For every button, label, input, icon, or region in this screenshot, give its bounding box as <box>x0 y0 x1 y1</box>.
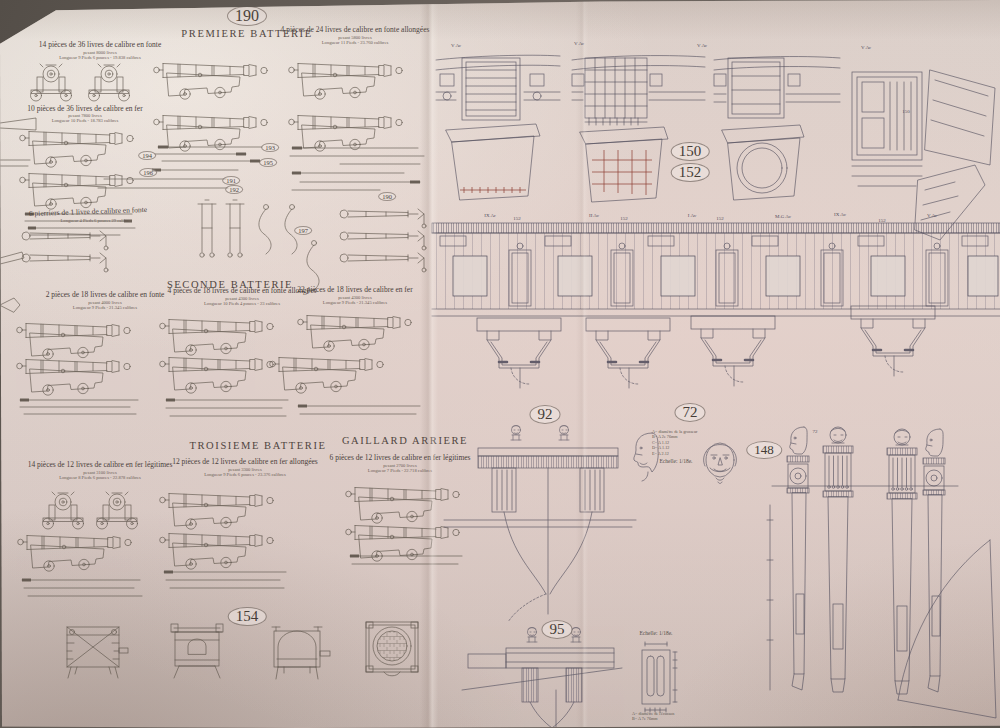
scale-label-72: Echelle: 1/18e. <box>660 458 693 464</box>
ref-72-small: 72 <box>813 429 818 434</box>
station-name: IX Ar <box>484 213 496 218</box>
ref-95: 95 <box>542 620 573 639</box>
note-line: B= A 7e 76mm <box>632 716 674 721</box>
troisieme-batterie-drawings <box>18 488 462 597</box>
ref-196: 196 <box>139 168 157 177</box>
ref-193: 193 <box>261 143 279 152</box>
bulwark-strip <box>432 223 1000 316</box>
ref-72: 72 <box>675 403 706 422</box>
belfry-95-drawing <box>462 627 622 728</box>
photo-background: 190 PREMIERE BATTERIE 14 pièces de 36 li… <box>0 0 1000 728</box>
label-18-fer: 22 pièces de 18 livres de calibre en fer <box>297 285 412 294</box>
ref-148: 148 <box>746 441 782 459</box>
station-label-top: V Av <box>697 43 707 48</box>
ref-150-small: 150 <box>902 109 910 114</box>
galley-stove-drawings <box>67 622 418 679</box>
scale-label-95: Echelle: 1/18e. <box>640 630 673 636</box>
station-name: II Av <box>589 213 599 218</box>
ref-150: 150 <box>671 142 710 161</box>
ref-194: 194 <box>138 151 156 160</box>
ref-191: 191 <box>222 176 240 185</box>
label-12-allongees: 12 pièces de 12 livres de calibre en fer… <box>172 457 318 466</box>
note-line: E= A 2.12 <box>652 451 697 456</box>
ref-92: 92 <box>530 405 561 424</box>
station-name: M.G Av <box>775 214 791 219</box>
belfry-92-drawing <box>444 425 636 622</box>
station-num: 152 <box>878 218 886 223</box>
label-36-fer: 10 pièces de 36 livres de calibre en fer <box>27 104 142 113</box>
station-num: 152 <box>513 216 521 221</box>
notes-72: A= diamètre de la grosseur B= A 2e 76mm … <box>652 429 697 456</box>
spec-line: Longueur 7 Pieds - 22.718 calibres <box>368 468 432 473</box>
ref-192: 192 <box>225 185 243 194</box>
station-name: I Av <box>688 213 696 218</box>
ref-197: 197 <box>294 226 312 235</box>
station-name: V Av <box>927 213 937 218</box>
label-24-fonte: 4 pièces de 24 livres de calibre en font… <box>281 25 430 34</box>
gunport-plans <box>477 306 935 388</box>
label-12-legitimes: 14 pièces de 12 livres de calibre en fer… <box>28 460 173 469</box>
gaillard-arriere-title: GAILLARD ARRIERE <box>342 435 468 446</box>
spec-line: Longueur 8 Pieds 6 pouces - 22.878 calib… <box>59 475 141 480</box>
spec-line: Longueur 9 Pieds 6 pouces - 19.838 calib… <box>59 55 141 60</box>
notes-95: A= diamètre de l'écusson B= A 7e 76mm <box>632 711 674 722</box>
station-name: IX Av <box>834 212 846 217</box>
plate-number-badge: 190 <box>227 6 267 26</box>
spec-line: Longueur 4 Pieds 6 pouces 29 calibres <box>61 218 132 223</box>
troisieme-batterie-title: TROISIEME BATTERIE <box>190 440 327 451</box>
station-num: 152 <box>716 216 724 221</box>
ref-195: 195 <box>259 158 277 167</box>
spec-line: Longueur 9 Pieds - 21.345 calibres <box>323 300 387 305</box>
station-label-top: V Av <box>861 45 871 50</box>
label-18-allongees: 4 pièces de 18 livres de calibre en font… <box>168 286 317 295</box>
station-label-top: V Av <box>451 43 461 48</box>
spec-line: Longueur 11 Pieds - 23.760 calibres <box>322 40 388 45</box>
seconde-batterie-drawings <box>0 298 420 416</box>
gunport-elevations <box>436 55 995 240</box>
station-num: 152 <box>620 216 628 221</box>
ref-154: 154 <box>228 607 267 626</box>
label-18-fonte: 2 pièces de 18 livres de calibre en font… <box>46 290 165 299</box>
sculpture-drawings <box>634 427 996 718</box>
plan-drawings <box>0 0 1000 728</box>
label-12-gaillard: 6 pièces de 12 livres de calibre en fer … <box>330 453 471 462</box>
label-36-fonte: 14 pièces de 36 livres de calibre en fon… <box>39 40 161 49</box>
plan-sheet: 190 PREMIERE BATTERIE 14 pièces de 36 li… <box>0 0 1000 728</box>
spec-line: Longueur 9 Pieds - 21.345 calibres <box>73 305 137 310</box>
station-label-top: V Av <box>574 41 584 46</box>
escutcheon-schematic <box>642 642 677 712</box>
ref-152: 152 <box>671 163 710 182</box>
ref-190-small: 190 <box>378 192 396 201</box>
spec-line: Longueur 10 Pieds 4 pouces - 23 calibres <box>204 301 280 306</box>
spec-line: Longueur 10 Pieds - 18.783 calibres <box>52 118 119 123</box>
spec-line: Longueur 9 Pieds 6 pouces - 23.376 calib… <box>204 472 286 477</box>
